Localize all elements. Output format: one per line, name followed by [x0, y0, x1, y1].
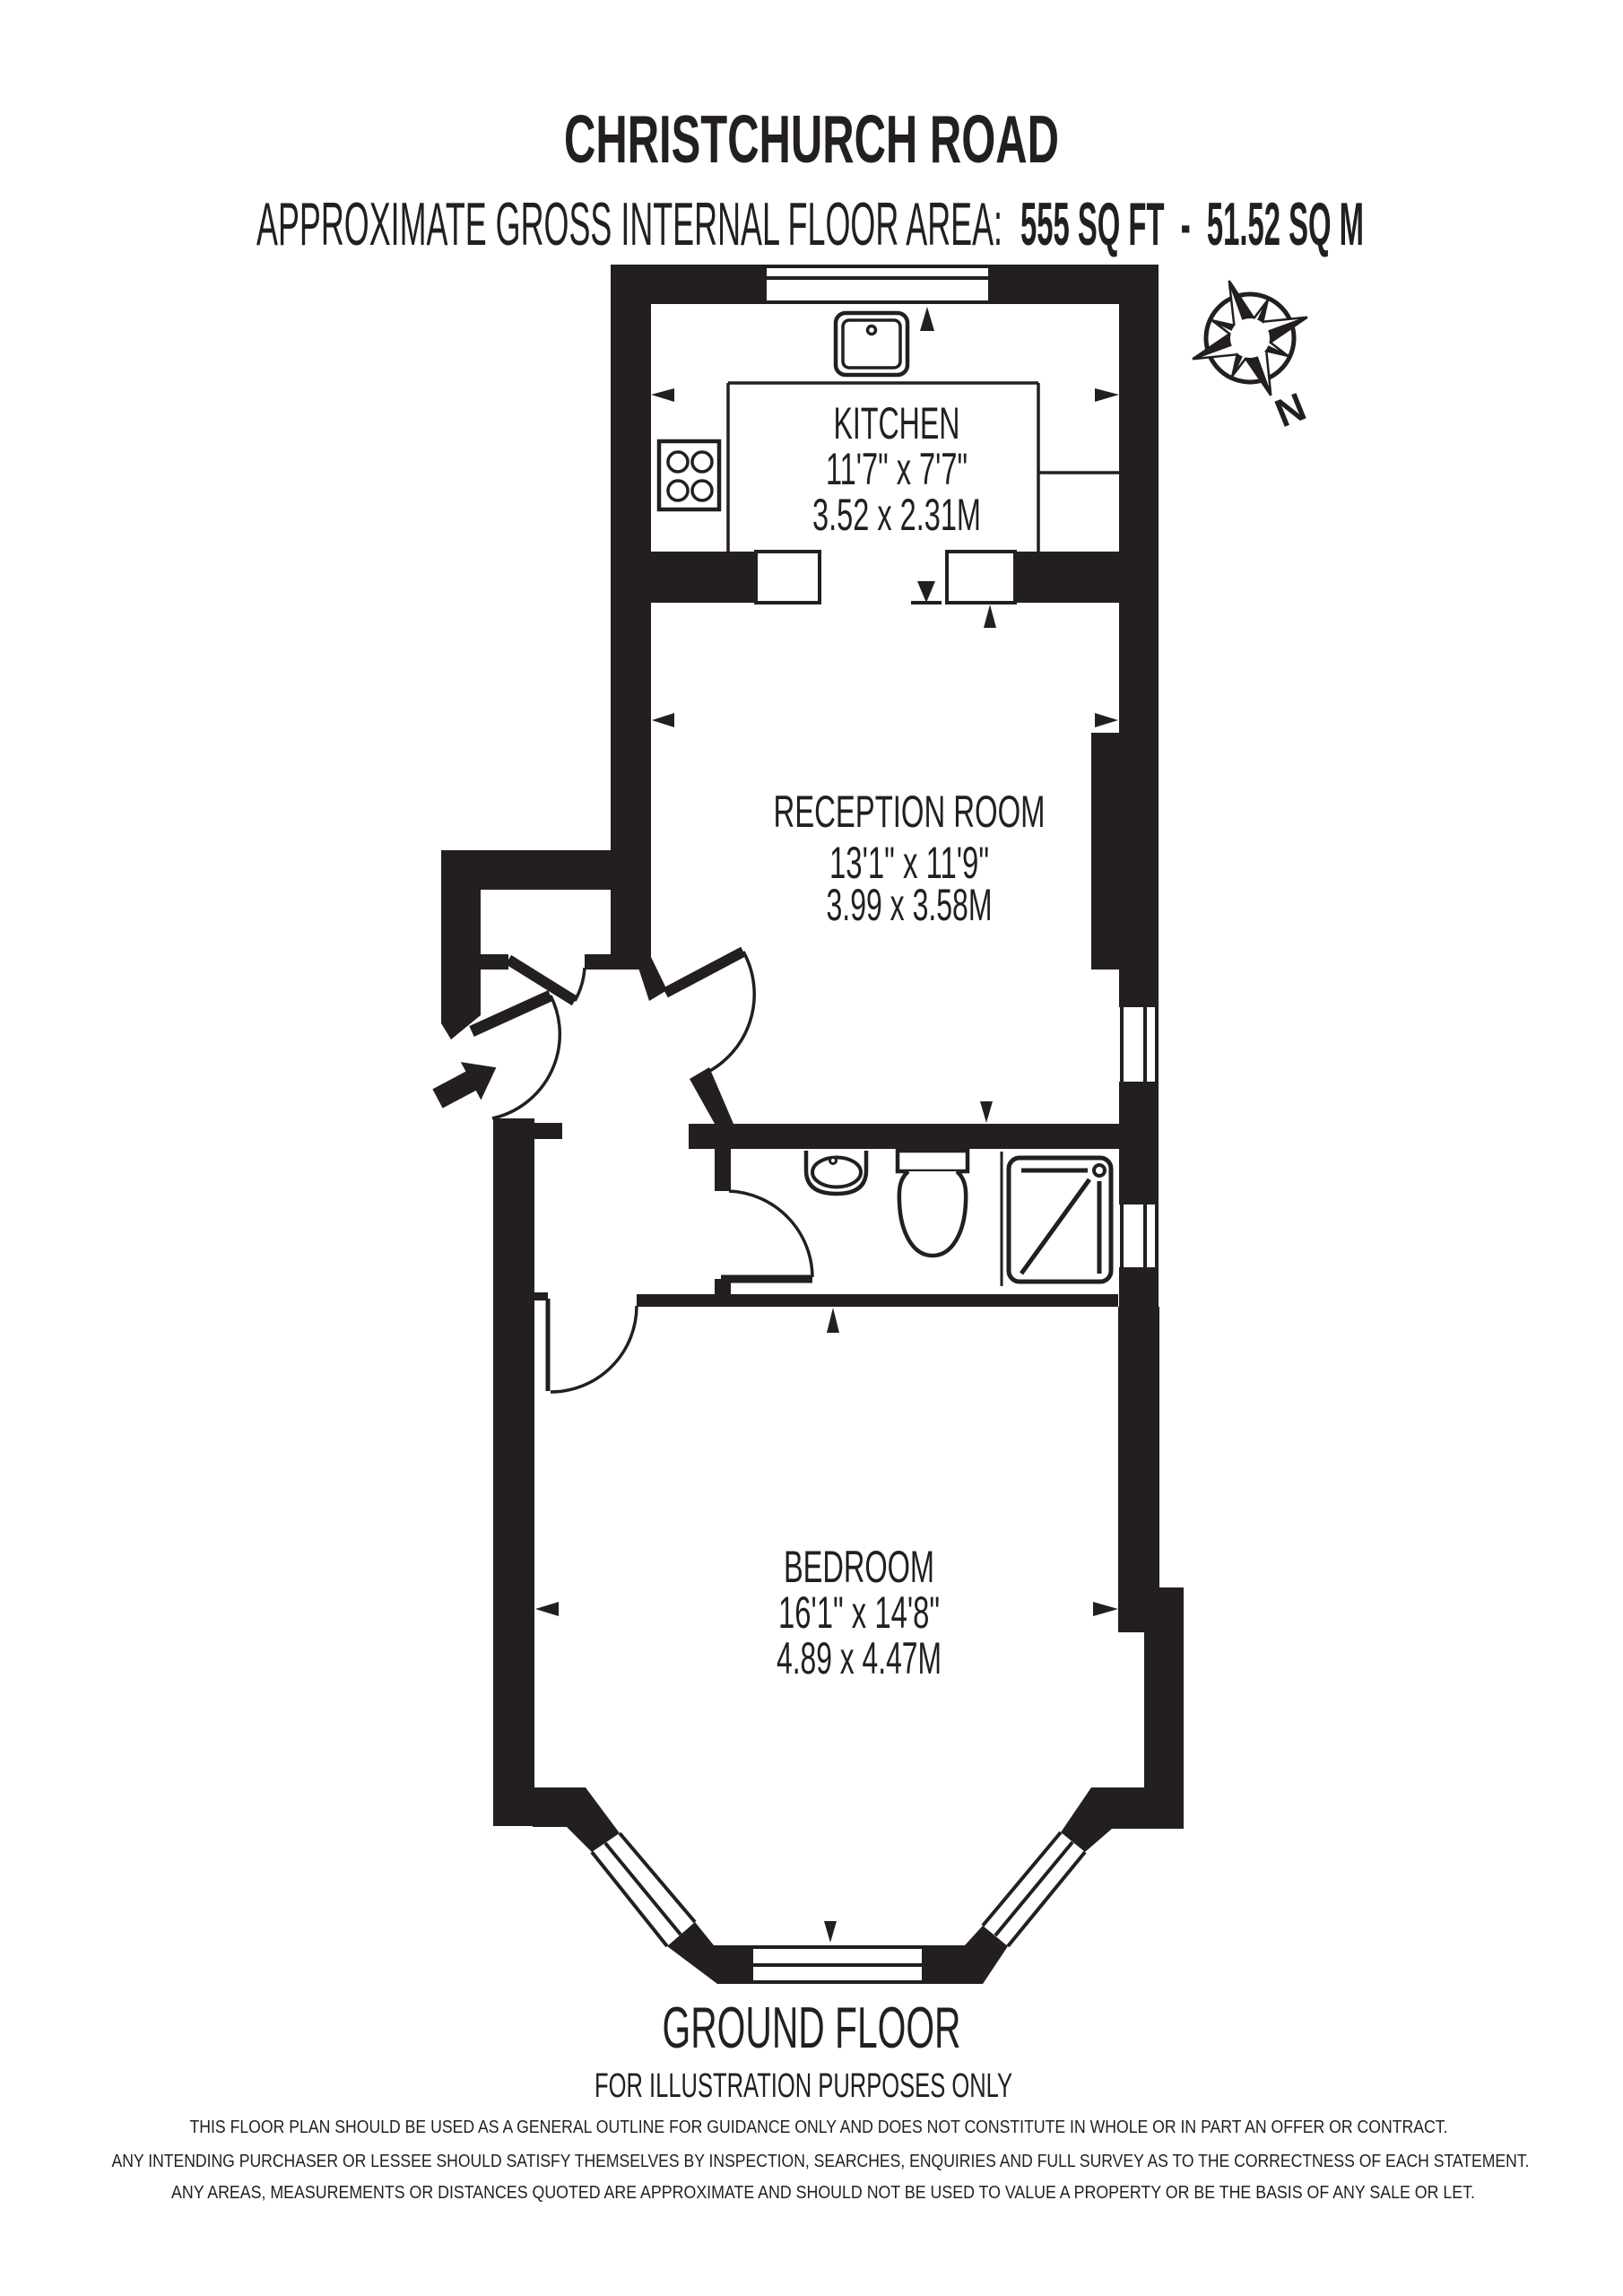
- svg-text:ANY INTENDING PURCHASER OR LES: ANY INTENDING PURCHASER OR LESSEE SHOULD…: [112, 2151, 1530, 2171]
- svg-text:3.99 x 3.58M: 3.99 x 3.58M: [827, 880, 993, 930]
- svg-text:ANY AREAS, MEASUREMENTS OR DIS: ANY AREAS, MEASUREMENTS OR DISTANCES QUO…: [171, 2182, 1475, 2203]
- svg-text:FOR ILLUSTRATION PURPOSES ONLY: FOR ILLUSTRATION PURPOSES ONLY: [595, 2067, 1012, 2105]
- svg-text:16'1" x 14'8": 16'1" x 14'8": [778, 1587, 940, 1638]
- svg-text:BEDROOM: BEDROOM: [784, 1542, 934, 1592]
- svg-text:CHRISTCHURCH ROAD: CHRISTCHURCH ROAD: [564, 101, 1059, 177]
- svg-text:KITCHEN: KITCHEN: [834, 398, 960, 448]
- svg-text:4.89 x 4.47M: 4.89 x 4.47M: [777, 1633, 942, 1683]
- svg-text:APPROXIMATE GROSS INTERNAL FLO: APPROXIMATE GROSS INTERNAL FLOOR AREA:: [256, 190, 1002, 258]
- svg-text:THIS FLOOR PLAN SHOULD BE USED: THIS FLOOR PLAN SHOULD BE USED AS A GENE…: [190, 2117, 1448, 2137]
- svg-text:11'7" x 7'7": 11'7" x 7'7": [826, 444, 968, 494]
- svg-text:3.52 x 2.31M: 3.52 x 2.31M: [812, 490, 981, 540]
- svg-text:555 SQ FT - 51.52 SQ M: 555 SQ FT - 51.52 SQ M: [1020, 190, 1364, 258]
- svg-text:RECEPTION ROOM: RECEPTION ROOM: [774, 787, 1046, 837]
- svg-text:GROUND FLOOR: GROUND FLOOR: [663, 1995, 961, 2060]
